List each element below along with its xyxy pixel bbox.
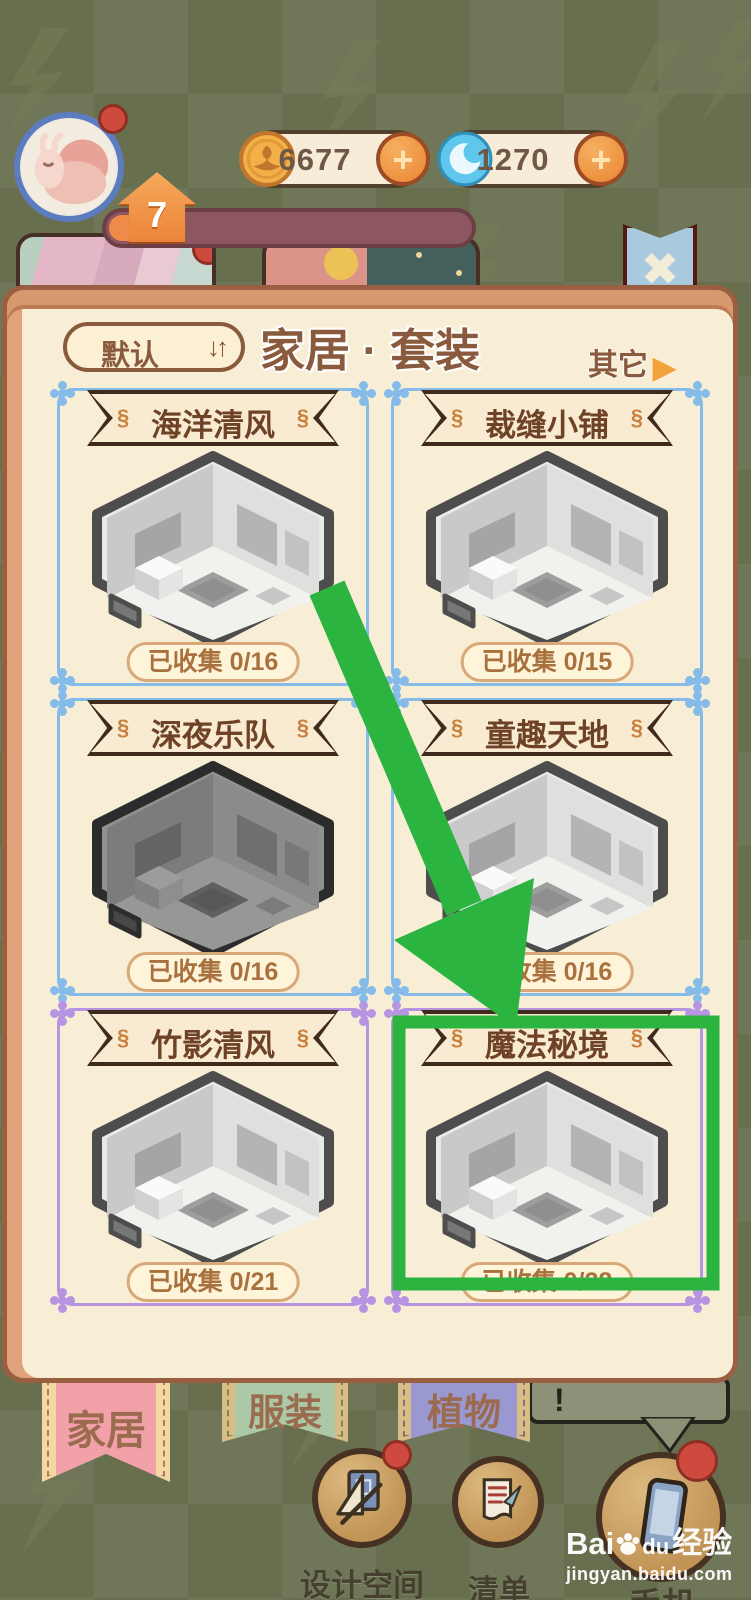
add-gems-button[interactable]: + — [574, 132, 628, 186]
chevron-right-icon: ▶ — [652, 349, 677, 385]
scroll-list-icon — [468, 1470, 529, 1534]
plus-icon: + — [578, 138, 624, 182]
set-card-bamboo[interactable]: § 竹影清风 § 已收集 0/21 — [57, 1008, 369, 1306]
set-banner: § 深夜乐队 § — [87, 700, 339, 756]
baidu-paw-icon — [615, 1531, 641, 1557]
set-card-band[interactable]: § 深夜乐队 § 已收集 0/16 — [57, 698, 369, 996]
game-screen: 7 6677 + 1270 + ✖ — [0, 0, 751, 1600]
room-preview-art — [411, 450, 683, 646]
watermark-brand: du — [642, 1536, 669, 1558]
level-number: 7 — [118, 194, 196, 236]
sun-icon — [324, 246, 358, 280]
tab-home[interactable]: 家居 — [42, 1374, 170, 1482]
watermark-brand: Bai — [566, 1530, 614, 1558]
gem-amount: 1270 — [446, 142, 580, 178]
set-card-tailor[interactable]: § 裁缝小铺 § 已收集 0/15 — [391, 388, 703, 686]
more-button[interactable]: 其它 ▶ — [588, 340, 677, 380]
room-preview-art — [411, 760, 683, 956]
baidu-jingyan-watermark: Bai du 经验 jingyan.baidu.com — [566, 1528, 733, 1585]
background-tab-preview-2[interactable] — [262, 236, 480, 290]
gem-currency-pill: 1270 + — [442, 130, 624, 188]
collected-badge: 已收集 0/28 — [461, 1262, 634, 1302]
banner-ornament-icon: § — [297, 1025, 309, 1051]
lightning-bolt-decoration — [315, 40, 387, 160]
watermark-url: jingyan.baidu.com — [566, 1564, 733, 1585]
lightning-bolt-decoration — [700, 20, 751, 130]
watermark-brand-cn: 经验 — [672, 1529, 732, 1558]
magic-orb-icon — [436, 130, 494, 188]
phone-notification-dot — [676, 1440, 718, 1482]
snail-avatar-art — [20, 118, 118, 216]
background-tab-preview-1[interactable] — [16, 233, 216, 289]
checklist-label: 清单 — [460, 1566, 538, 1600]
set-banner: § 海洋清风 § — [87, 390, 339, 446]
design-notification-dot — [382, 1440, 412, 1470]
banner-ornament-icon: § — [631, 1025, 643, 1051]
more-label: 其它 — [588, 349, 648, 382]
banner-ornament-icon: § — [631, 715, 643, 741]
tab-clothing[interactable]: 服装 — [222, 1374, 348, 1442]
set-banner: § 竹影清风 § — [87, 1010, 339, 1066]
set-banner: § 裁缝小铺 § — [421, 390, 673, 446]
tab-notification-dot — [192, 233, 216, 265]
tab-plants[interactable]: 植物 — [398, 1374, 530, 1442]
set-card-ocean[interactable]: § 海洋清风 § 已收集 0/16 — [57, 388, 369, 686]
level-badge: 7 — [118, 172, 196, 242]
set-card-kids[interactable]: § 童趣天地 § 已收集 0/16 — [391, 698, 703, 996]
tab-plants-label: 植物 — [398, 1382, 530, 1436]
alert-bubble: ! — [528, 1376, 730, 1424]
collected-badge: 已收集 0/16 — [127, 642, 300, 682]
room-preview-art — [77, 450, 349, 646]
design-space-label: 设计空间 — [288, 1560, 436, 1600]
room-preview-art — [411, 1070, 683, 1266]
plus-icon: + — [380, 138, 426, 182]
banner-ornament-icon: § — [297, 405, 309, 431]
coin-icon — [238, 130, 296, 188]
set-card-magic[interactable]: § 魔法秘境 § 已收集 0/28 — [391, 1008, 703, 1306]
tab-clothing-label: 服装 — [222, 1382, 348, 1436]
collected-badge: 已收集 0/16 — [461, 952, 634, 992]
room-preview-art — [77, 760, 349, 956]
banner-ornament-icon: § — [297, 715, 309, 741]
exclamation-icon: ! — [554, 1382, 565, 1419]
home-sets-panel: 默认 ↓↑ 家居 · 套装 其它 ▶ § 海洋清风 § — [2, 285, 738, 1383]
checklist-button[interactable] — [452, 1456, 544, 1548]
banner-ornament-icon: § — [631, 405, 643, 431]
set-banner: § 魔法秘境 § — [421, 1010, 673, 1066]
blueprint-ruler-icon — [329, 1463, 396, 1533]
house-icon — [118, 172, 196, 242]
collected-badge: 已收集 0/16 — [127, 952, 300, 992]
collected-badge: 已收集 0/21 — [127, 1262, 300, 1302]
collected-badge: 已收集 0/15 — [461, 642, 634, 682]
add-coins-button[interactable]: + — [376, 132, 430, 186]
stars-decoration — [416, 252, 422, 258]
player-avatar[interactable] — [14, 112, 124, 222]
tab-home-label: 家居 — [42, 1398, 170, 1456]
close-button[interactable]: ✖ — [623, 224, 697, 294]
room-preview-art — [77, 1070, 349, 1266]
set-banner: § 童趣天地 § — [421, 700, 673, 756]
